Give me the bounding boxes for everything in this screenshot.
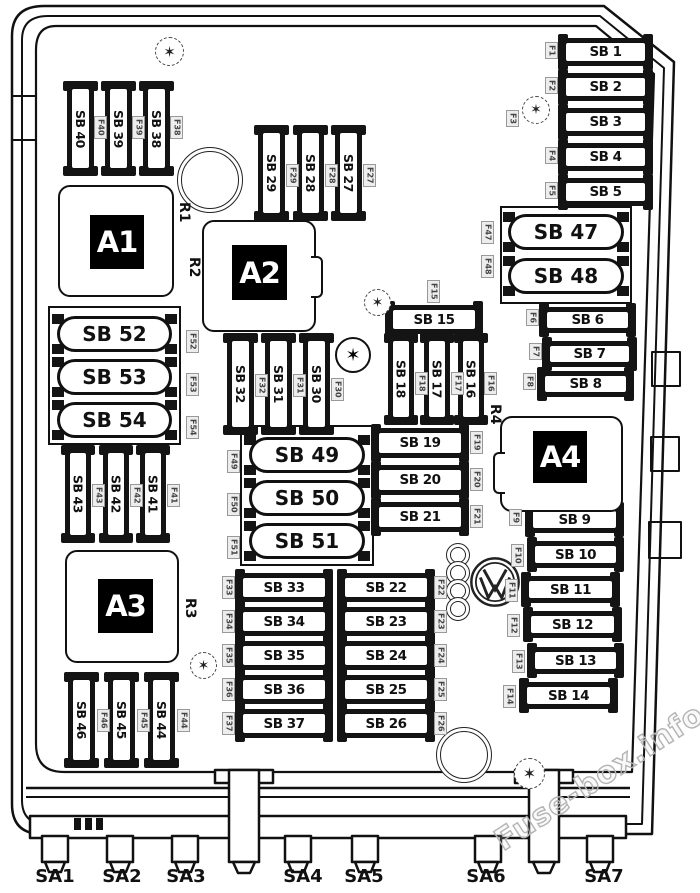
fuse-sb-48: SB 48 bbox=[508, 258, 624, 294]
fuse-body: SB 12 bbox=[530, 615, 615, 634]
fuse-id-label-f48: F48 bbox=[481, 255, 494, 278]
fuse-id-label-f21: F21 bbox=[470, 505, 483, 528]
fuse-id-label-f17: F17 bbox=[451, 372, 464, 395]
fuse-sb-49: SB 49 bbox=[249, 437, 365, 473]
fuse-sb-39: SB 39 bbox=[105, 84, 132, 173]
fuse-id-label-f54: F54 bbox=[186, 416, 199, 439]
fuse-id-label-f20: F20 bbox=[470, 468, 483, 491]
fuse-sb-41: SB 41 bbox=[140, 448, 166, 540]
fuse-sb-14: SB 14 bbox=[522, 682, 615, 709]
relay-label: A2 bbox=[239, 256, 280, 290]
fuse-id-label-f12: F12 bbox=[507, 614, 520, 637]
fuse-body: SB 42 bbox=[107, 452, 125, 536]
fuse-label: SB 6 bbox=[571, 312, 603, 328]
relay-chip: A4 bbox=[533, 431, 587, 483]
fuse-body: SB 45 bbox=[112, 679, 131, 761]
fuse-id-label-f46: F46 bbox=[97, 709, 110, 732]
fuse-id-label-f30: F30 bbox=[331, 378, 344, 401]
fuse-sb-24: SB 24 bbox=[340, 641, 432, 670]
fuse-id-label-f6: F6 bbox=[526, 309, 539, 326]
fuse-id-label-f3: F3 bbox=[506, 110, 519, 127]
fuse-label: SB 13 bbox=[555, 653, 596, 669]
fuse-body: SB 35 bbox=[242, 645, 326, 666]
fuse-label: SB 35 bbox=[264, 648, 305, 664]
inner-ring bbox=[440, 731, 488, 779]
fuse-sb-5: SB 5 bbox=[561, 178, 650, 206]
relay-label: A1 bbox=[97, 225, 138, 259]
connector-label-sa6: SA6 bbox=[454, 866, 518, 887]
fuse-label: SB 43 bbox=[71, 475, 86, 513]
relay-chip: A2 bbox=[232, 245, 287, 300]
fuse-sb-52: SB 52 bbox=[57, 316, 172, 352]
fuse-label: SB 48 bbox=[534, 264, 598, 288]
fuse-label: SB 21 bbox=[400, 509, 441, 525]
fuse-sb-27: SB 27 bbox=[335, 128, 362, 218]
fuse-label: SB 31 bbox=[271, 365, 286, 403]
fuse-label: SB 41 bbox=[146, 475, 161, 513]
fuse-id-label-f35: F35 bbox=[222, 644, 235, 667]
fuse-body: SB 11 bbox=[528, 580, 613, 599]
relay-label: A4 bbox=[540, 440, 581, 474]
fuse-sb-37: SB 37 bbox=[238, 709, 330, 738]
fuse-body: SB 10 bbox=[534, 545, 617, 564]
fuse-id-label-f22: F22 bbox=[434, 576, 447, 599]
fuse-label: SB 3 bbox=[589, 114, 621, 130]
fuse-body: SB 14 bbox=[526, 686, 611, 705]
fuse-id-label-f13: F13 bbox=[512, 650, 525, 673]
fuse-label: SB 30 bbox=[309, 365, 324, 403]
torx-screw-icon: ✶ bbox=[155, 37, 184, 66]
fuse-body: SB 33 bbox=[242, 577, 326, 598]
fuse-body: SB 39 bbox=[109, 88, 128, 169]
fuse-id-label-f14: F14 bbox=[503, 685, 516, 708]
fuse-sb-25: SB 25 bbox=[340, 675, 432, 704]
fuse-label: SB 14 bbox=[548, 688, 589, 704]
fuse-sb-40: SB 40 bbox=[67, 84, 94, 173]
fuse-body: SB 5 bbox=[565, 182, 646, 202]
fuse-label: SB 17 bbox=[430, 360, 445, 398]
fuse-id-label-f8: F8 bbox=[523, 373, 536, 390]
fuse-body: SB 31 bbox=[269, 340, 288, 428]
fuse-label: SB 33 bbox=[264, 580, 305, 596]
connector-label-sa4: SA4 bbox=[271, 866, 335, 887]
fuse-label: SB 52 bbox=[82, 322, 146, 346]
fuse-label: SB 47 bbox=[534, 220, 598, 244]
fuse-body: SB 40 bbox=[71, 88, 90, 169]
fuse-sb-18: SB 18 bbox=[388, 336, 414, 422]
fuse-body: SB 19 bbox=[378, 432, 462, 454]
star-glyph: ✶ bbox=[372, 295, 384, 311]
fuse-id-label-f40: F40 bbox=[94, 116, 107, 139]
fuse-id-label-f16: F16 bbox=[484, 372, 497, 395]
relay-position-label-r1: R1 bbox=[176, 202, 192, 223]
connector-label-sa1: SA1 bbox=[23, 866, 87, 887]
fuse-body: SB 24 bbox=[344, 645, 428, 666]
fuse-body: SB 15 bbox=[392, 309, 476, 330]
fuse-label: SB 16 bbox=[464, 360, 479, 398]
fuse-sb-4: SB 4 bbox=[561, 143, 650, 171]
fuse-id-label-f11: F11 bbox=[505, 579, 518, 602]
connector-label-sa3: SA3 bbox=[154, 866, 218, 887]
fuse-sb-35: SB 35 bbox=[238, 641, 330, 670]
fuse-body: SB 18 bbox=[392, 340, 410, 418]
fuse-body: SB 29 bbox=[262, 132, 281, 214]
fuse-label: SB 54 bbox=[82, 408, 146, 432]
fuse-label: SB 24 bbox=[366, 648, 407, 664]
fuse-label: SB 7 bbox=[573, 346, 605, 362]
fuse-id-label-f43: F43 bbox=[92, 484, 105, 507]
torx-screw-icon: ✶ bbox=[522, 96, 550, 124]
fuse-body: SB 4 bbox=[565, 147, 646, 167]
fuse-id-label-f44: F44 bbox=[177, 709, 190, 732]
relay-a2: A2 bbox=[202, 220, 316, 332]
fuse-id-label-f45: F45 bbox=[137, 709, 150, 732]
fuse-id-label-f5: F5 bbox=[545, 182, 558, 199]
fuse-body: SB 44 bbox=[152, 679, 171, 761]
fuse-body: SB 17 bbox=[428, 340, 446, 418]
fuse-label: SB 39 bbox=[111, 110, 126, 148]
relay-socket-tab bbox=[493, 452, 505, 494]
fuse-id-label-f37: F37 bbox=[222, 712, 235, 735]
fuse-sb-45: SB 45 bbox=[108, 675, 135, 765]
fuse-label: SB 8 bbox=[569, 376, 601, 392]
fuse-sb-20: SB 20 bbox=[374, 465, 466, 495]
fuse-label: SB 25 bbox=[366, 682, 407, 698]
inner-ring bbox=[181, 151, 239, 209]
fuse-body: SB 13 bbox=[534, 651, 617, 670]
fuse-label: SB 42 bbox=[109, 475, 124, 513]
fuse-label: SB 38 bbox=[149, 110, 164, 148]
relay-socket-tab bbox=[311, 256, 323, 298]
fuse-label: SB 34 bbox=[264, 614, 305, 630]
fuse-id-label-f50: F50 bbox=[227, 493, 240, 516]
fuse-id-label-f53: F53 bbox=[186, 373, 199, 396]
fuse-body: SB 21 bbox=[378, 506, 462, 528]
fuse-id-label-f52: F52 bbox=[186, 330, 199, 353]
fuse-label: SB 50 bbox=[275, 486, 339, 510]
fuse-body: SB 16 bbox=[462, 340, 480, 418]
fuse-sb-23: SB 23 bbox=[340, 607, 432, 636]
star-glyph: ✶ bbox=[163, 43, 176, 61]
fuse-id-label-f4: F4 bbox=[545, 147, 558, 164]
fuse-sb-47: SB 47 bbox=[508, 214, 624, 250]
fuse-body: SB 20 bbox=[378, 469, 462, 491]
fuse-body: SB 28 bbox=[301, 132, 320, 214]
fuse-label: SB 5 bbox=[589, 184, 621, 200]
fuse-sb-32: SB 32 bbox=[227, 336, 254, 432]
relay-a3: A3 bbox=[65, 550, 179, 663]
connector-label-sa7: SA7 bbox=[572, 866, 636, 887]
fuse-label: SB 15 bbox=[414, 312, 455, 328]
fuse-label: SB 20 bbox=[400, 472, 441, 488]
torx-screw-icon: ✶ bbox=[190, 652, 217, 679]
fuse-sb-54: SB 54 bbox=[57, 402, 172, 438]
fuse-label: SB 36 bbox=[264, 682, 305, 698]
fuse-sb-12: SB 12 bbox=[526, 611, 619, 638]
fuse-id-label-f47: F47 bbox=[481, 221, 494, 244]
fuse-label: SB 28 bbox=[303, 154, 318, 192]
fuse-body: SB 38 bbox=[147, 88, 166, 169]
fuse-sb-19: SB 19 bbox=[374, 428, 466, 458]
fuse-label: SB 23 bbox=[366, 614, 407, 630]
fuse-label: SB 51 bbox=[275, 529, 339, 553]
fuse-sb-42: SB 42 bbox=[103, 448, 129, 540]
fuse-label: SB 19 bbox=[400, 435, 441, 451]
torx-screw-icon: ✶ bbox=[335, 337, 371, 373]
fuse-id-label-f1: F1 bbox=[545, 42, 558, 59]
audi-rings-icon bbox=[446, 597, 470, 621]
star-glyph: ✶ bbox=[345, 345, 360, 366]
connector-label-sa5: SA5 bbox=[332, 866, 396, 887]
fuse-id-label-f7: F7 bbox=[529, 343, 542, 360]
inner-ring bbox=[450, 601, 466, 617]
fuse-id-label-f10: F10 bbox=[511, 544, 524, 567]
relay-position-label-r3: R3 bbox=[182, 598, 198, 619]
fuse-label: SB 37 bbox=[264, 716, 305, 732]
fuse-body: SB 3 bbox=[565, 112, 646, 132]
torx-screw-icon: ✶ bbox=[364, 289, 391, 316]
fuse-sb-21: SB 21 bbox=[374, 502, 466, 532]
fuse-id-label-f19: F19 bbox=[470, 431, 483, 454]
fuse-label: SB 18 bbox=[394, 360, 409, 398]
fuse-label: SB 4 bbox=[589, 149, 621, 165]
fuse-id-label-f27: F27 bbox=[363, 164, 376, 187]
fuse-body: SB 6 bbox=[546, 311, 629, 329]
fuse-label: SB 53 bbox=[82, 365, 146, 389]
fuse-sb-28: SB 28 bbox=[297, 128, 324, 218]
fuse-body: SB 46 bbox=[72, 679, 91, 761]
fuse-id-label-f34: F34 bbox=[222, 610, 235, 633]
fuse-sb-11: SB 11 bbox=[524, 576, 617, 603]
fuse-body: SB 30 bbox=[307, 340, 326, 428]
fuse-label: SB 49 bbox=[275, 443, 339, 467]
fuse-sb-36: SB 36 bbox=[238, 675, 330, 704]
round-opening bbox=[436, 727, 492, 783]
torx-screw-icon: ✶ bbox=[514, 758, 545, 789]
fuse-id-label-f33: F33 bbox=[222, 576, 235, 599]
fuse-sb-7: SB 7 bbox=[545, 341, 634, 367]
fuse-body: SB 37 bbox=[242, 713, 326, 734]
fuse-id-label-f9: F9 bbox=[509, 509, 522, 526]
fuse-body: SB 7 bbox=[549, 345, 630, 363]
fuse-body: SB 32 bbox=[231, 340, 250, 428]
fuse-id-label-f49: F49 bbox=[227, 450, 240, 473]
fuse-label: SB 46 bbox=[74, 701, 89, 739]
fuse-label: SB 40 bbox=[73, 110, 88, 148]
fuse-id-label-f18: F18 bbox=[415, 372, 428, 395]
fuse-sb-46: SB 46 bbox=[68, 675, 95, 765]
fuse-label: SB 12 bbox=[552, 617, 593, 633]
fuse-id-label-f36: F36 bbox=[222, 678, 235, 701]
relay-chip: A3 bbox=[98, 579, 153, 633]
fuse-id-label-f29: F29 bbox=[286, 164, 299, 187]
star-glyph: ✶ bbox=[198, 658, 210, 674]
relay-position-label-r4: R4 bbox=[487, 404, 503, 425]
relay-position-label-r2: R2 bbox=[186, 257, 202, 278]
relay-a4: A4 bbox=[500, 416, 623, 512]
fuse-label: SB 1 bbox=[589, 44, 621, 60]
fuse-label: SB 44 bbox=[154, 701, 169, 739]
fuse-sb-31: SB 31 bbox=[265, 336, 292, 432]
fuse-sb-51: SB 51 bbox=[249, 523, 365, 559]
fuse-sb-3: SB 3 bbox=[561, 108, 650, 136]
fuse-sb-10: SB 10 bbox=[530, 541, 621, 568]
fuse-id-label-f32: F32 bbox=[255, 374, 268, 397]
fuse-id-label-f42: F42 bbox=[130, 484, 143, 507]
fuse-sb-44: SB 44 bbox=[148, 675, 175, 765]
fuse-id-label-f51: F51 bbox=[227, 536, 240, 559]
fuse-label: SB 9 bbox=[558, 512, 590, 528]
fuse-id-label-f2: F2 bbox=[545, 77, 558, 94]
fuse-body: SB 41 bbox=[144, 452, 162, 536]
fuse-label: SB 10 bbox=[555, 547, 596, 563]
fuse-id-label-f24: F24 bbox=[434, 644, 447, 667]
star-glyph: ✶ bbox=[530, 102, 542, 118]
fuse-sb-50: SB 50 bbox=[249, 480, 365, 516]
fuse-body: SB 36 bbox=[242, 679, 326, 700]
fuse-sb-38: SB 38 bbox=[143, 84, 170, 173]
fuse-label: SB 2 bbox=[589, 79, 621, 95]
star-glyph: ✶ bbox=[523, 764, 536, 783]
fuse-body: SB 43 bbox=[69, 452, 87, 536]
fuse-label: SB 11 bbox=[550, 582, 591, 598]
fuse-label: SB 32 bbox=[233, 365, 248, 403]
fuse-id-label-f28: F28 bbox=[325, 164, 338, 187]
fuse-id-label-f39: F39 bbox=[132, 116, 145, 139]
fuse-sb-29: SB 29 bbox=[258, 128, 285, 218]
fuse-sb-30: SB 30 bbox=[303, 336, 330, 432]
fuse-sb-26: SB 26 bbox=[340, 709, 432, 738]
fuse-label: SB 26 bbox=[366, 716, 407, 732]
fuse-label: SB 27 bbox=[341, 154, 356, 192]
fuse-label: SB 45 bbox=[114, 701, 129, 739]
fuse-body: SB 1 bbox=[565, 42, 646, 62]
fuse-sb-15: SB 15 bbox=[388, 305, 480, 334]
fuse-sb-34: SB 34 bbox=[238, 607, 330, 636]
fuse-body: SB 34 bbox=[242, 611, 326, 632]
fuse-sb-8: SB 8 bbox=[540, 371, 631, 397]
relay-a1: A1 bbox=[58, 185, 174, 297]
fuse-sb-2: SB 2 bbox=[561, 73, 650, 101]
fuse-body: SB 9 bbox=[532, 510, 617, 529]
fuse-id-label-f31: F31 bbox=[293, 374, 306, 397]
fuse-body: SB 27 bbox=[339, 132, 358, 214]
fuse-body: SB 22 bbox=[344, 577, 428, 598]
fuse-label: SB 22 bbox=[366, 580, 407, 596]
fuse-id-label-f38: F38 bbox=[170, 116, 183, 139]
relay-chip: A1 bbox=[90, 215, 144, 269]
fuse-id-label-f23: F23 bbox=[434, 610, 447, 633]
fuse-sb-33: SB 33 bbox=[238, 573, 330, 602]
fuse-sb-22: SB 22 bbox=[340, 573, 432, 602]
connector-label-sa2: SA2 bbox=[90, 866, 154, 887]
fuse-body: SB 8 bbox=[544, 375, 627, 393]
fuse-id-label-f25: F25 bbox=[434, 678, 447, 701]
fuse-body: SB 23 bbox=[344, 611, 428, 632]
fuse-sb-43: SB 43 bbox=[65, 448, 91, 540]
fuse-body: SB 25 bbox=[344, 679, 428, 700]
fuse-sb-13: SB 13 bbox=[530, 647, 621, 674]
fuse-id-label-f26: F26 bbox=[434, 712, 447, 735]
fuse-box-diagram: SB 40F40SB 39F39SB 38F38SB 29F29SB 28F28… bbox=[0, 0, 700, 893]
fuse-sb-53: SB 53 bbox=[57, 359, 172, 395]
fuse-id-label-f41: F41 bbox=[167, 484, 180, 507]
fuse-label: SB 29 bbox=[264, 154, 279, 192]
fuse-id-label-f15: F15 bbox=[427, 280, 440, 303]
fuse-sb-6: SB 6 bbox=[542, 307, 633, 333]
relay-label: A3 bbox=[105, 589, 146, 623]
fuse-body: SB 26 bbox=[344, 713, 428, 734]
fuse-sb-1: SB 1 bbox=[561, 38, 650, 66]
fuse-body: SB 2 bbox=[565, 77, 646, 97]
